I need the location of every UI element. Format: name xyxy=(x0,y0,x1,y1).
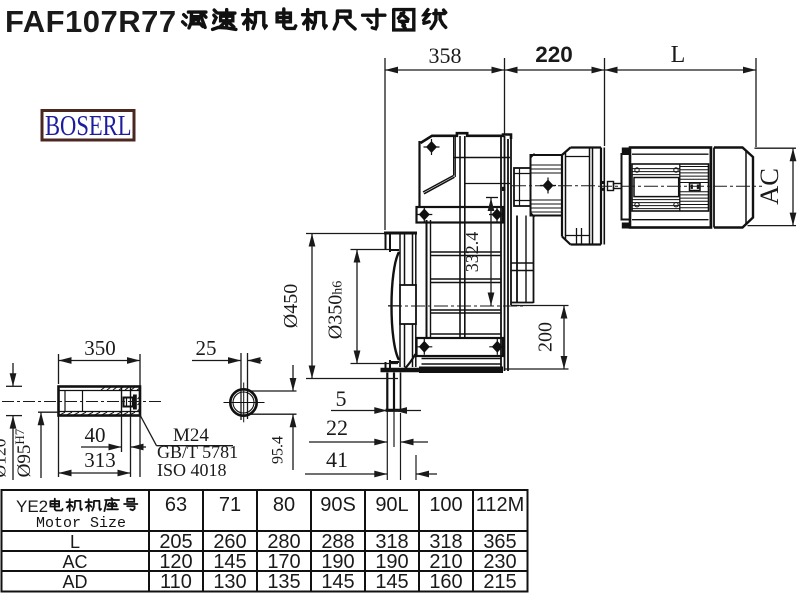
svg-text:AC: AC xyxy=(754,168,784,205)
svg-text:FAF107R77: FAF107R77 xyxy=(5,4,177,39)
svg-text:71: 71 xyxy=(219,494,241,516)
svg-text:280: 280 xyxy=(267,531,300,553)
svg-text:130: 130 xyxy=(213,571,246,593)
svg-text:AC: AC xyxy=(62,552,87,572)
svg-text:GB/T 5781: GB/T 5781 xyxy=(157,442,238,462)
svg-text:5: 5 xyxy=(336,386,347,411)
svg-text:170: 170 xyxy=(267,551,300,573)
svg-text:BOSERL: BOSERL xyxy=(45,111,132,142)
svg-text:160: 160 xyxy=(429,571,462,593)
svg-text:Ø450: Ø450 xyxy=(280,284,302,328)
svg-text:190: 190 xyxy=(321,551,354,573)
svg-text:40: 40 xyxy=(85,423,106,447)
svg-text:200: 200 xyxy=(535,322,557,352)
svg-text:313: 313 xyxy=(84,448,116,472)
svg-text:318: 318 xyxy=(429,531,462,553)
svg-text:95.4: 95.4 xyxy=(270,436,287,464)
svg-text:L: L xyxy=(70,532,80,552)
svg-text:350: 350 xyxy=(84,336,116,360)
svg-text:110: 110 xyxy=(160,571,192,593)
svg-text:190: 190 xyxy=(375,551,408,573)
svg-text:365: 365 xyxy=(483,531,516,553)
svg-text:90L: 90L xyxy=(375,494,408,516)
svg-text:ISO 4018: ISO 4018 xyxy=(157,460,227,480)
svg-text:YE2: YE2 xyxy=(16,497,48,516)
svg-text:145: 145 xyxy=(321,571,354,593)
svg-text:Ø350h6: Ø350h6 xyxy=(325,281,347,339)
svg-text:90S: 90S xyxy=(320,494,356,516)
svg-text:41: 41 xyxy=(326,447,348,472)
svg-text:135: 135 xyxy=(267,571,300,593)
svg-text:145: 145 xyxy=(213,551,246,573)
svg-text:80: 80 xyxy=(273,494,295,516)
svg-text:100: 100 xyxy=(429,494,462,516)
svg-text:Ø95H7: Ø95H7 xyxy=(12,428,35,477)
svg-text:22: 22 xyxy=(326,415,348,440)
svg-text:332.4: 332.4 xyxy=(462,232,482,273)
svg-text:Ø120: Ø120 xyxy=(0,438,10,477)
svg-text:145: 145 xyxy=(375,571,408,593)
svg-text:120: 120 xyxy=(159,551,192,573)
svg-text:63: 63 xyxy=(165,494,187,516)
svg-text:318: 318 xyxy=(375,531,408,553)
svg-text:112M: 112M xyxy=(476,494,525,516)
svg-text:AD: AD xyxy=(62,572,87,592)
svg-text:215: 215 xyxy=(483,571,516,593)
svg-text:288: 288 xyxy=(321,531,354,553)
svg-text:230: 230 xyxy=(483,551,516,573)
svg-text:220: 220 xyxy=(535,42,573,67)
svg-text:210: 210 xyxy=(429,551,462,573)
svg-text:260: 260 xyxy=(213,531,246,553)
svg-text:L: L xyxy=(671,42,686,68)
svg-text:205: 205 xyxy=(159,531,192,553)
svg-text:Motor Size: Motor Size xyxy=(36,515,126,532)
svg-text:358: 358 xyxy=(429,43,462,68)
svg-text:25: 25 xyxy=(196,336,217,360)
